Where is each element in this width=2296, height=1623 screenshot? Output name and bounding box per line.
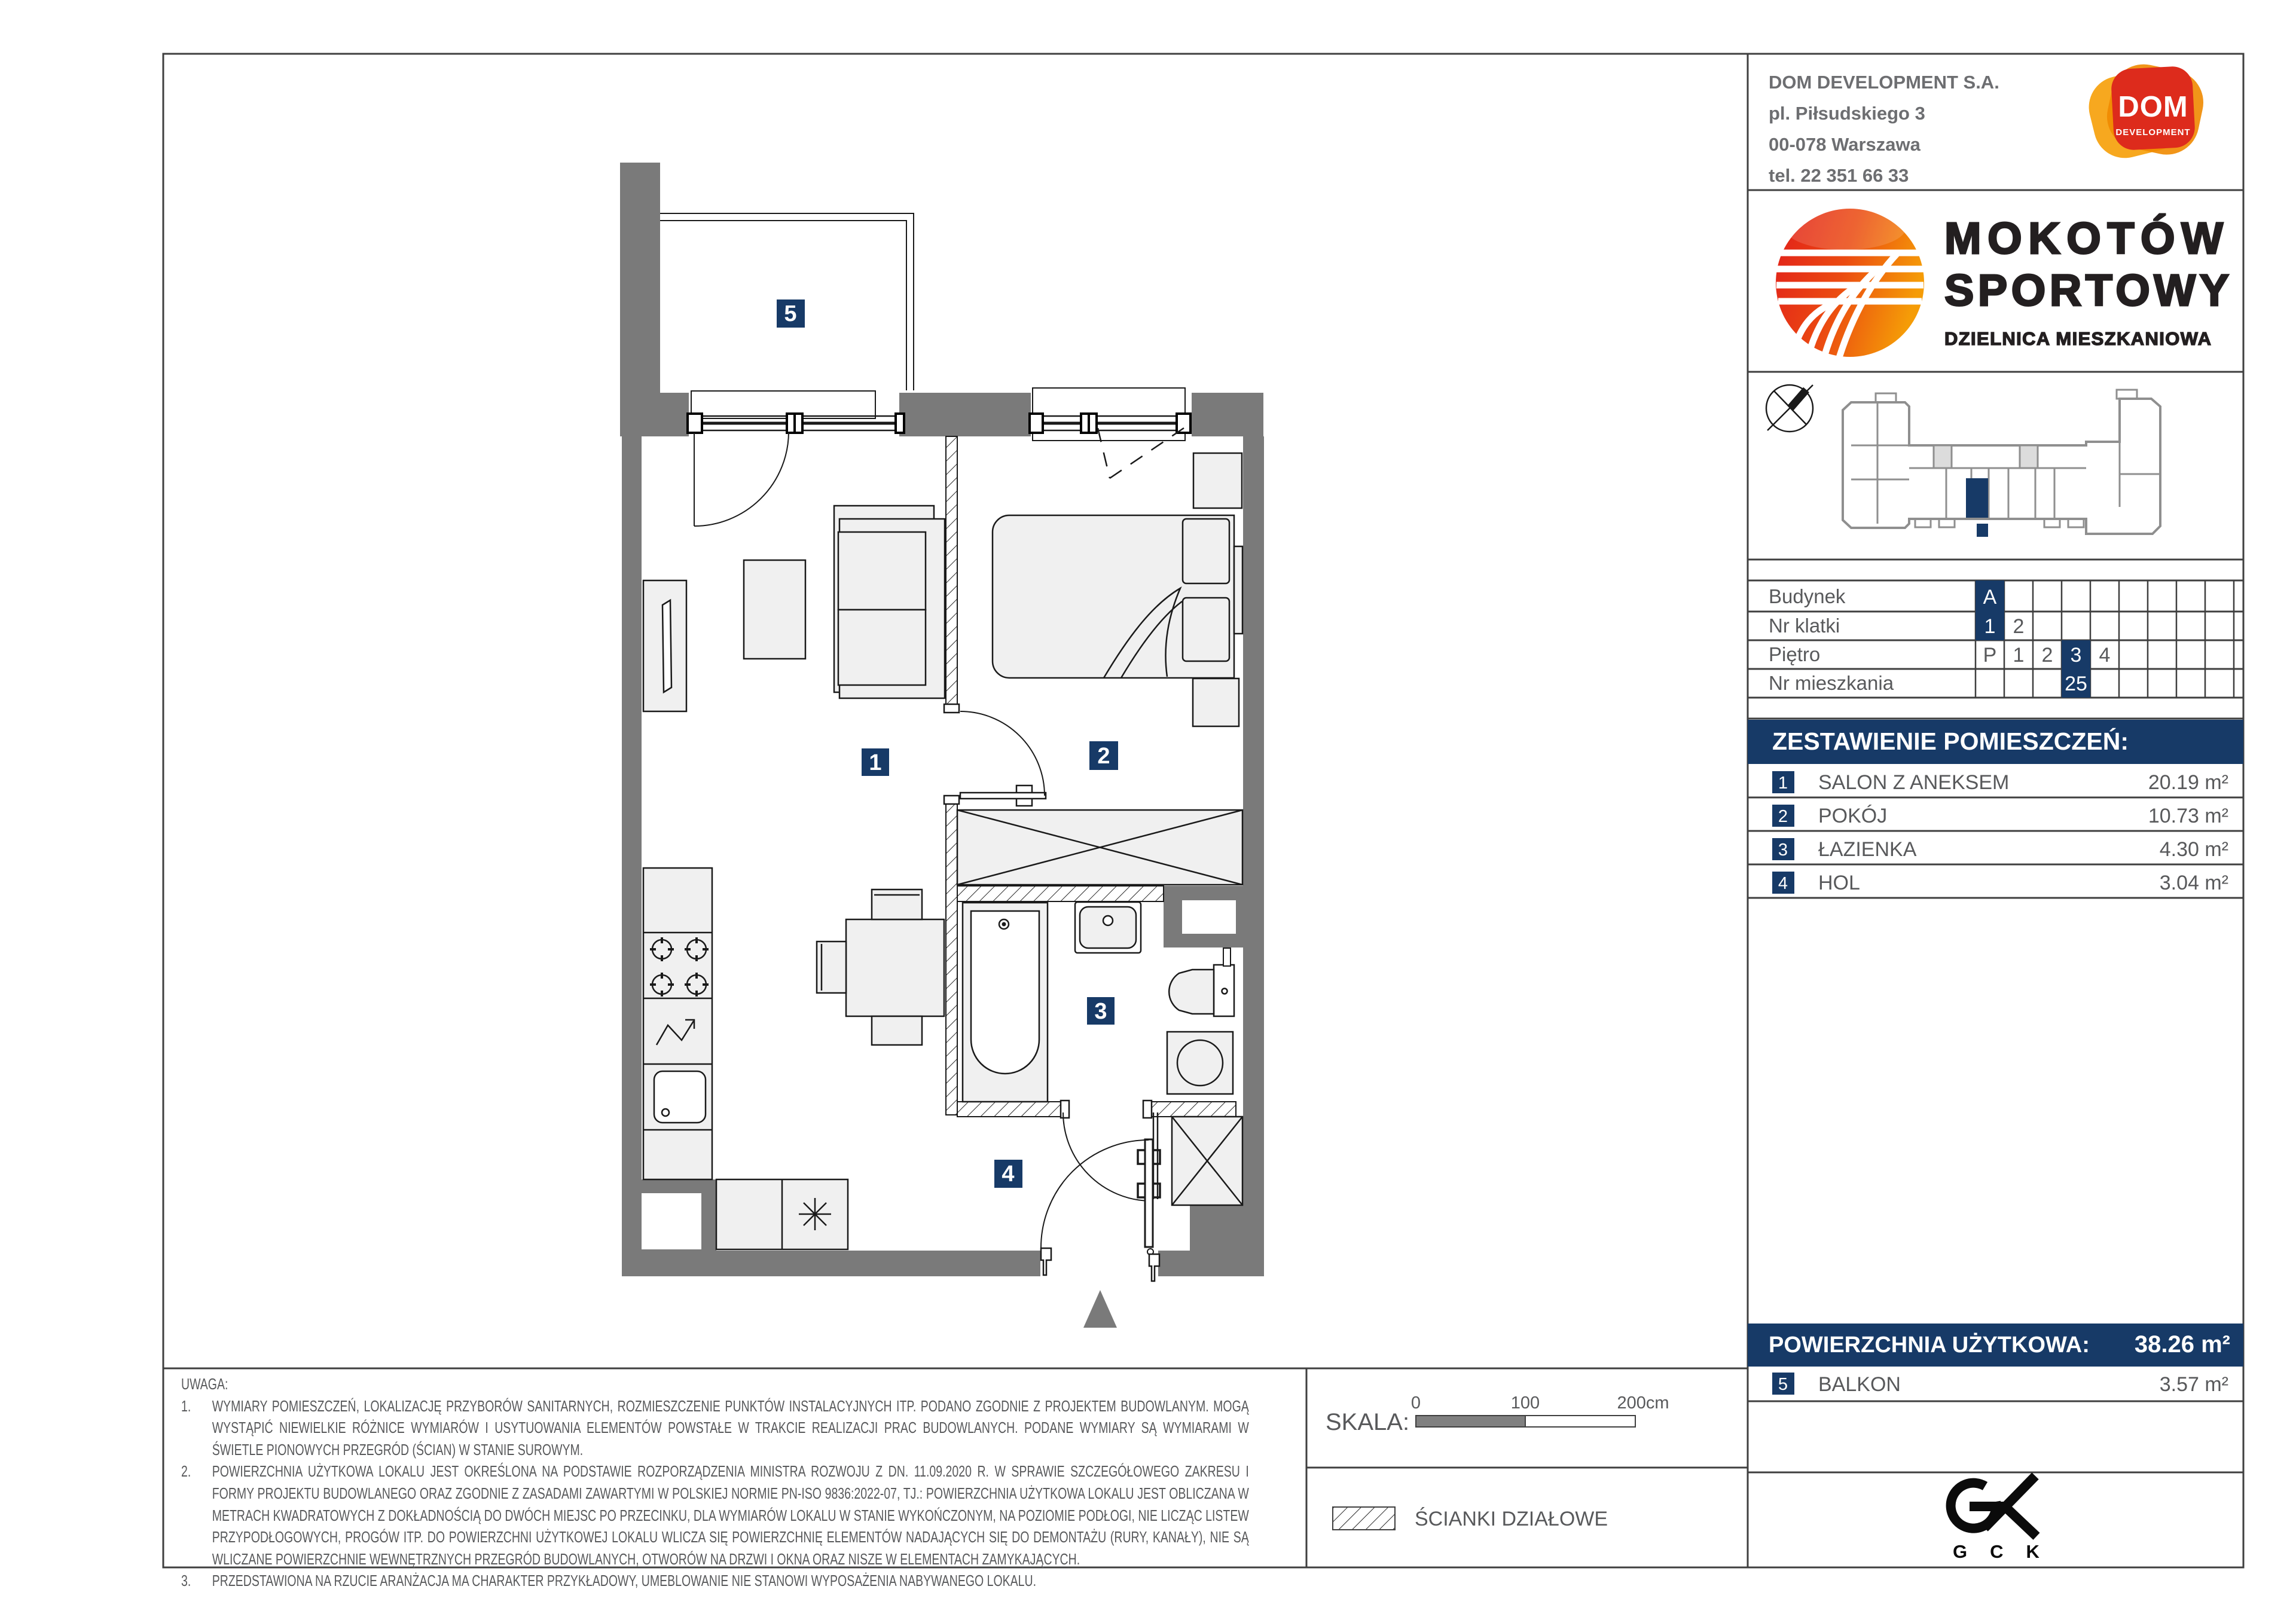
svg-text:100: 100: [1511, 1393, 1540, 1413]
svg-text:ZESTAWIENIE POMIESZCZEŃ:: ZESTAWIENIE POMIESZCZEŃ:: [1772, 728, 2129, 755]
svg-text:3: 3: [2071, 644, 2082, 667]
svg-text:1: 1: [869, 750, 881, 775]
svg-text:MOKOTÓW: MOKOTÓW: [1944, 213, 2224, 263]
svg-text:2: 2: [2013, 615, 2025, 638]
svg-text:4: 4: [1778, 874, 1788, 893]
svg-text:4: 4: [2099, 644, 2111, 667]
svg-text:1: 1: [1778, 774, 1788, 793]
svg-text:pl. Piłsudskiego 3: pl. Piłsudskiego 3: [1769, 103, 1925, 124]
svg-text:tel. 22 351 66 33: tel. 22 351 66 33: [1769, 165, 1909, 186]
svg-text:BALKON: BALKON: [1818, 1373, 1901, 1396]
svg-text:P: P: [1983, 644, 1997, 667]
svg-text:200cm: 200cm: [1617, 1393, 1669, 1413]
svg-text:3.04 m²: 3.04 m²: [2160, 872, 2228, 894]
svg-text:HOL: HOL: [1818, 872, 1860, 894]
svg-text:5: 5: [784, 301, 796, 326]
svg-text:2: 2: [1097, 744, 1110, 769]
svg-text:SKALA:: SKALA:: [1326, 1409, 1409, 1435]
svg-text:SPORTOWY: SPORTOWY: [1944, 265, 2230, 315]
svg-text:00-078 Warszawa: 00-078 Warszawa: [1769, 134, 1921, 155]
svg-text:1: 1: [2013, 644, 2025, 667]
svg-text:5: 5: [1778, 1375, 1788, 1394]
svg-text:DZIELNICA MIESZKANIOWA: DZIELNICA MIESZKANIOWA: [1944, 328, 2212, 349]
svg-text:2: 2: [1778, 807, 1788, 826]
svg-text:DOM DEVELOPMENT S.A.: DOM DEVELOPMENT S.A.: [1769, 72, 1999, 93]
svg-text:Nr mieszkania: Nr mieszkania: [1769, 672, 1894, 694]
svg-text:20.19 m²: 20.19 m²: [2148, 771, 2228, 794]
svg-text:2: 2: [2042, 644, 2053, 667]
svg-text:DEVELOPMENT: DEVELOPMENT: [2115, 127, 2190, 137]
svg-text:ŁAZIENKA: ŁAZIENKA: [1818, 838, 1917, 861]
svg-text:ŚCIANKI DZIAŁOWE: ŚCIANKI DZIAŁOWE: [1415, 1507, 1608, 1530]
svg-text:38.26 m²: 38.26 m²: [2135, 1331, 2230, 1358]
svg-text:1: 1: [1984, 615, 1996, 638]
svg-text:3: 3: [1094, 999, 1107, 1024]
svg-text:10.73 m²: 10.73 m²: [2148, 805, 2228, 827]
svg-text:25: 25: [2065, 673, 2087, 695]
svg-text:0: 0: [1411, 1393, 1421, 1413]
svg-text:Nr klatki: Nr klatki: [1769, 615, 1840, 637]
svg-text:SALON Z ANEKSEM: SALON Z ANEKSEM: [1818, 771, 2009, 794]
svg-text:4: 4: [1002, 1162, 1014, 1187]
svg-text:3: 3: [1778, 840, 1788, 860]
svg-text:4.30 m²: 4.30 m²: [2160, 838, 2228, 861]
svg-text:Budynek: Budynek: [1769, 585, 1846, 607]
svg-text:GCK: GCK: [1953, 1541, 2062, 1562]
svg-text:3.57 m²: 3.57 m²: [2160, 1373, 2228, 1396]
svg-text:DOM: DOM: [2118, 91, 2188, 123]
svg-text:POKÓJ: POKÓJ: [1818, 805, 1887, 827]
svg-text:POWIERZCHNIA UŻYTKOWA:: POWIERZCHNIA UŻYTKOWA:: [1769, 1332, 2090, 1358]
svg-text:A: A: [1983, 586, 1997, 609]
svg-text:Piętro: Piętro: [1769, 643, 1820, 665]
